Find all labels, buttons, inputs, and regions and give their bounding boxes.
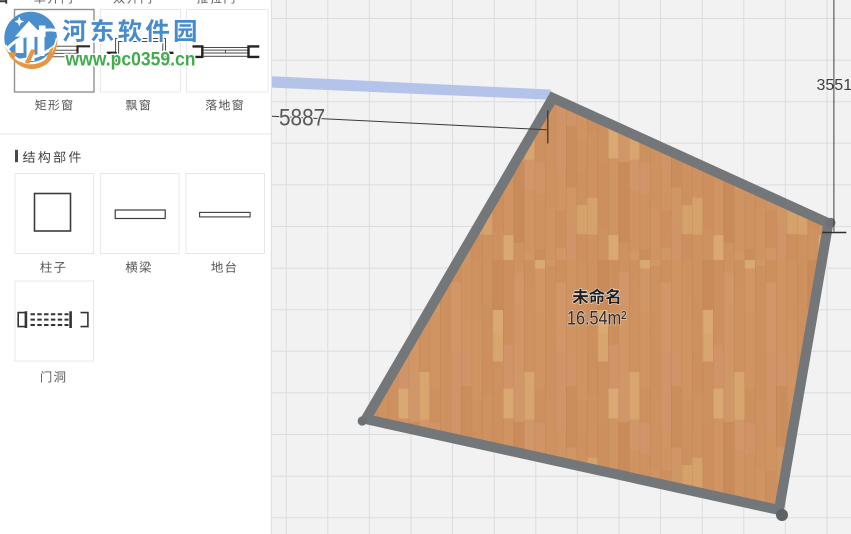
svg-text:3551: 3551 [817, 77, 851, 94]
svg-text:www.pc0359.cn: www.pc0359.cn [65, 48, 196, 70]
svg-text:5887: 5887 [279, 105, 325, 132]
svg-text:16.54m²: 16.54m² [567, 307, 627, 329]
